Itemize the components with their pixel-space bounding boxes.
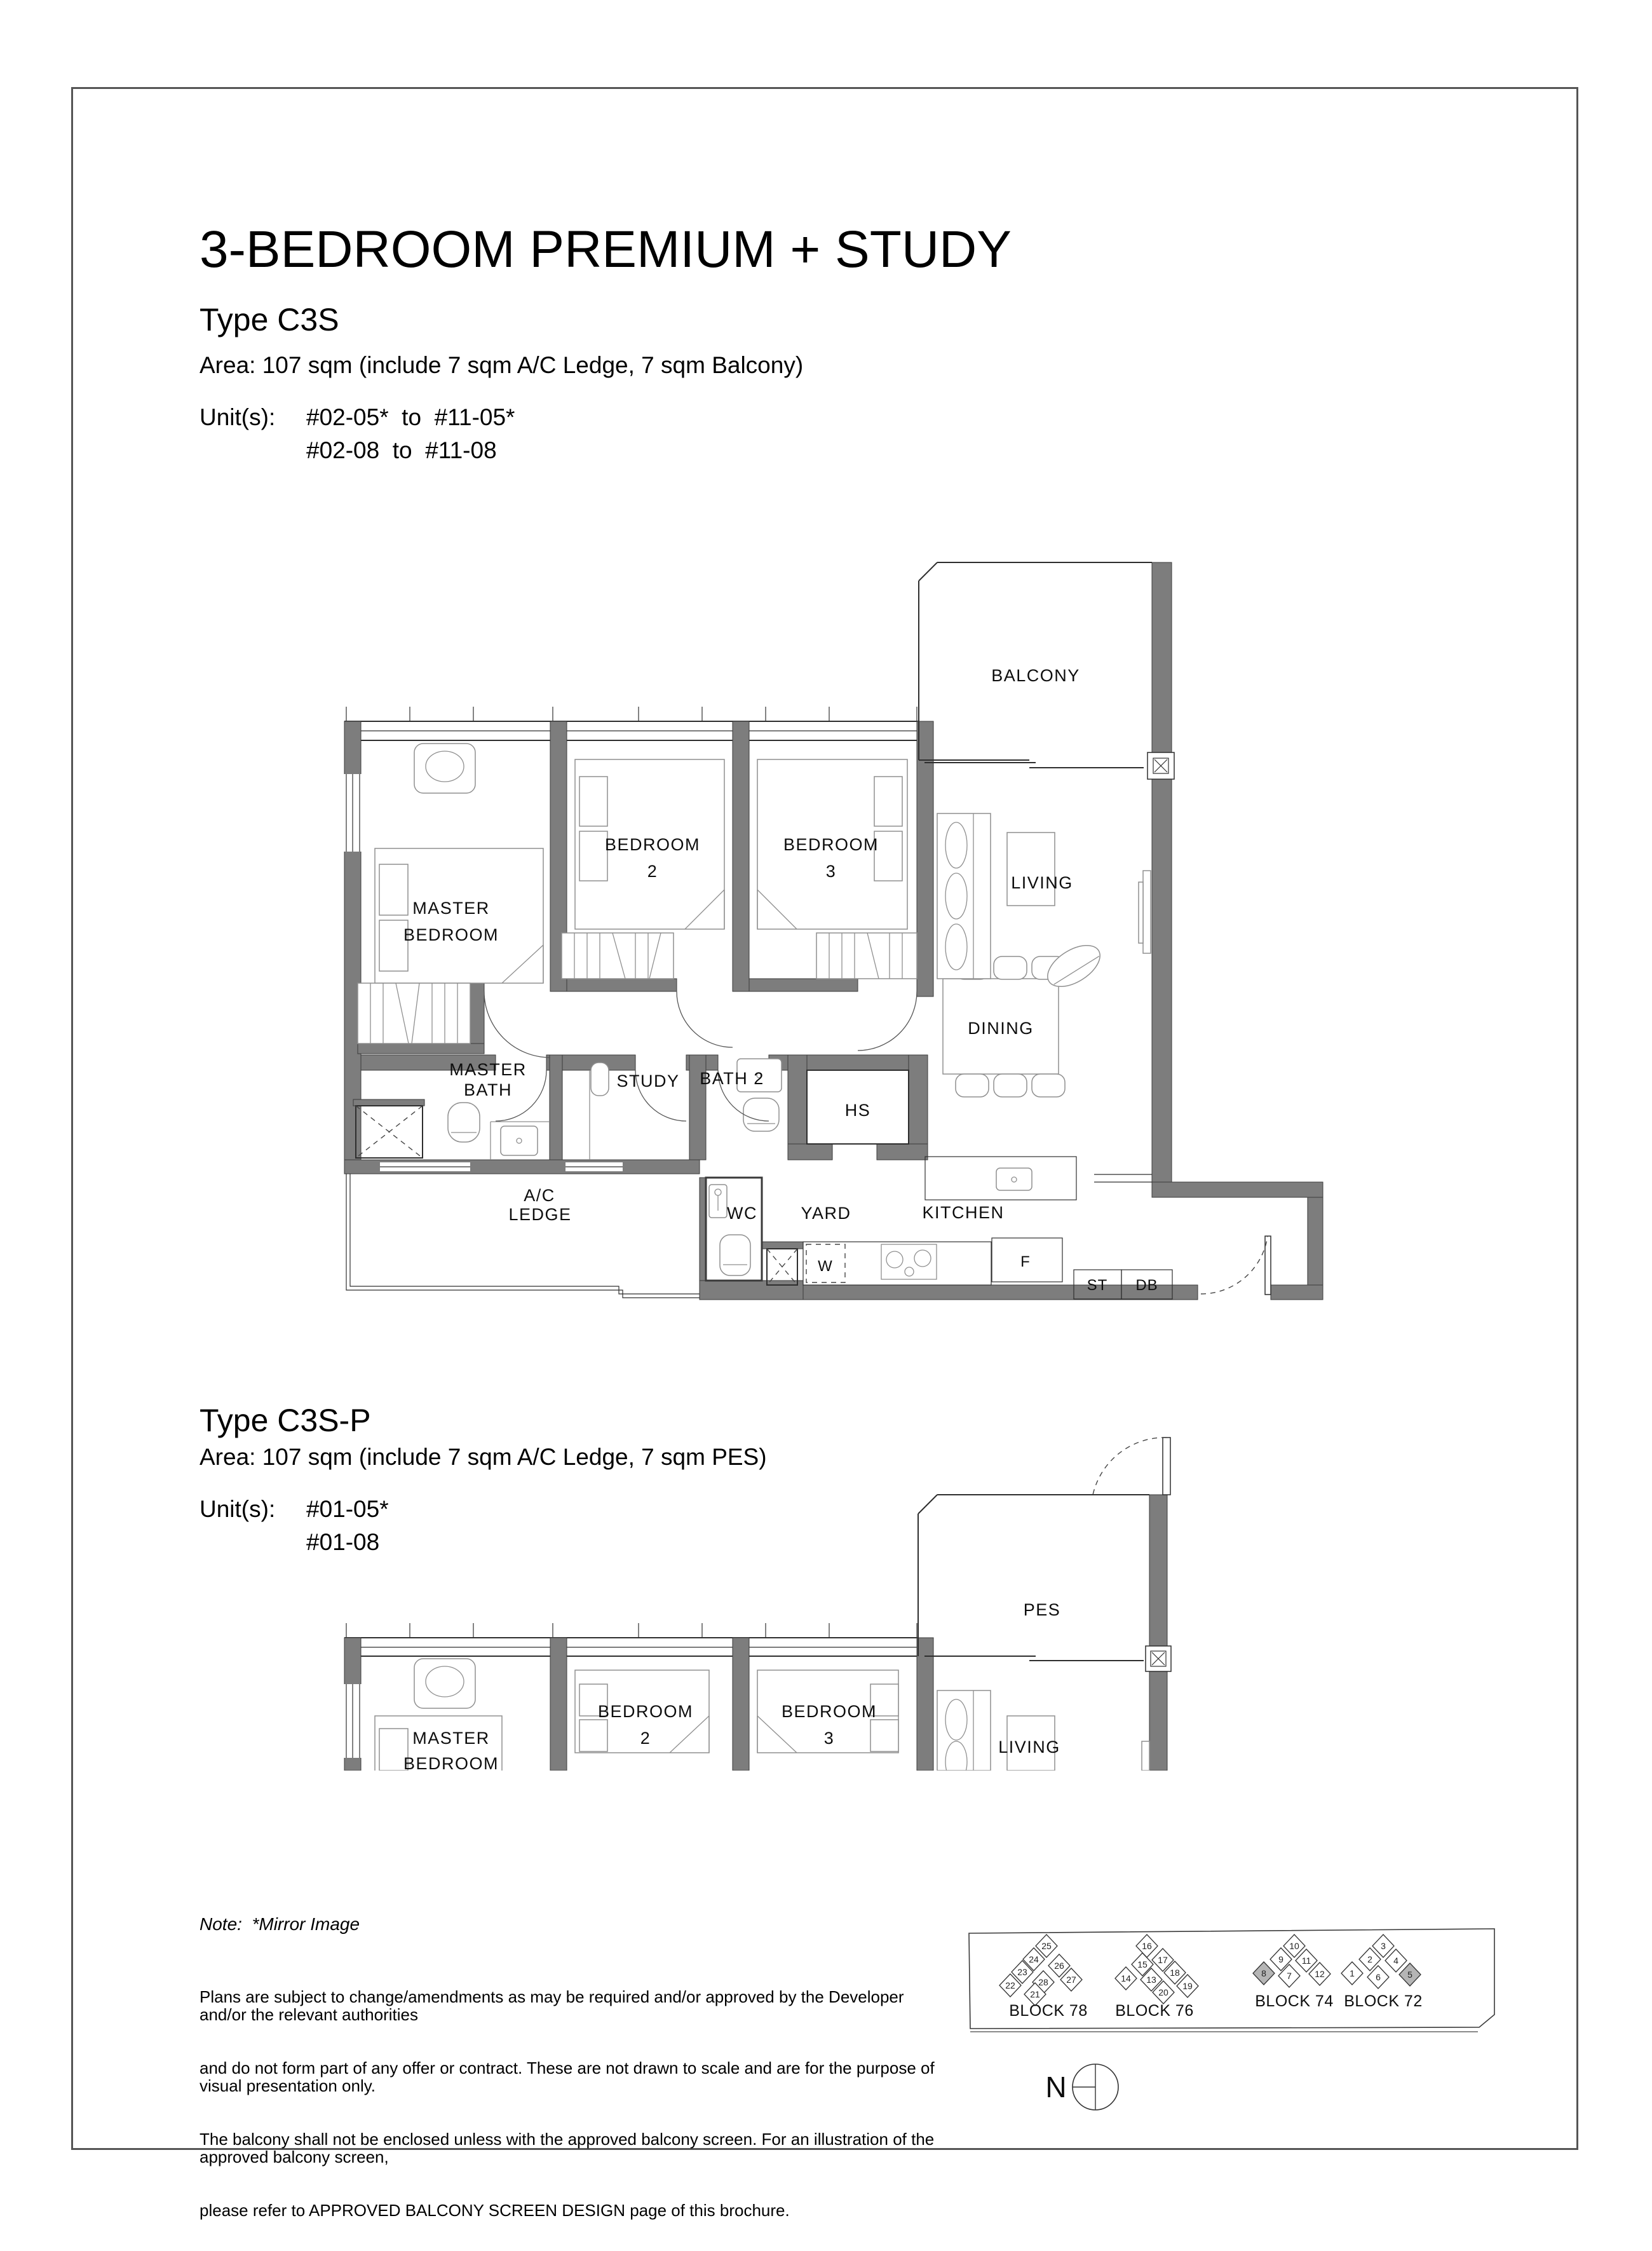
label-bed3-2: 3 [826, 862, 837, 881]
label-master2-1: MASTER [412, 1729, 490, 1748]
master-bath-fixtures [448, 1103, 550, 1160]
key-unit-number-21: 21 [1030, 1989, 1040, 1999]
label-bed2p-1: BEDROOM [598, 1702, 693, 1721]
label-wc: WC [727, 1204, 757, 1223]
floorplans-graphic: BALCONY LIVING DINING MASTER BEDROOM BED… [0, 0, 1652, 2251]
label-bath2: BATH 2 [700, 1069, 764, 1088]
key-unit-number-15: 15 [1137, 1959, 1148, 1969]
window-band-2 [344, 1623, 919, 1656]
north-compass: N [1045, 2064, 1118, 2110]
label-balcony: BALCONY [991, 666, 1080, 685]
block-label-1: BLOCK 76 [1115, 2002, 1194, 2020]
label-study: STUDY [616, 1071, 679, 1091]
key-unit-number-11: 11 [1302, 1955, 1311, 1966]
label-bed2p-2: 2 [640, 1729, 651, 1748]
key-unit-number-12: 12 [1315, 1969, 1325, 1979]
label-living: LIVING [1011, 873, 1073, 892]
key-unit-number-1: 1 [1350, 1968, 1355, 1978]
label-yard: YARD [801, 1204, 851, 1223]
key-unit-number-26: 26 [1054, 1961, 1064, 1971]
key-unit-number-6: 6 [1376, 1972, 1381, 1982]
label-bed3-1: BEDROOM [783, 835, 879, 854]
north-label: N [1045, 2071, 1066, 2104]
master-bed [375, 744, 543, 983]
label-bed3p-2: 3 [824, 1729, 835, 1748]
block-label-0: BLOCK 78 [1009, 2002, 1088, 2020]
key-unit-number-24: 24 [1029, 1954, 1039, 1964]
entrance-door [1201, 1236, 1271, 1295]
key-unit-number-4: 4 [1393, 1955, 1398, 1966]
label-master-2: BEDROOM [403, 925, 499, 944]
label-db: DB [1135, 1277, 1158, 1294]
block-label-2: BLOCK 74 [1255, 1992, 1334, 2010]
key-unit-number-25: 25 [1041, 1941, 1052, 1951]
key-unit-number-13: 13 [1146, 1975, 1156, 1985]
key-unit-number-23: 23 [1017, 1967, 1027, 1977]
key-unit-number-17: 17 [1158, 1955, 1168, 1965]
key-unit-number-14: 14 [1121, 1973, 1131, 1983]
key-unit-number-7: 7 [1287, 1971, 1292, 1981]
pes-structure [918, 1438, 1171, 1671]
key-unit-number-18: 18 [1170, 1968, 1180, 1978]
ac-ledge-outline [346, 1174, 700, 1298]
floorplan-c3s: BALCONY LIVING DINING MASTER BEDROOM BED… [342, 562, 1323, 1300]
kitchen-counter-top [925, 1157, 1152, 1200]
key-unit-number-27: 27 [1066, 1975, 1076, 1985]
label-master-1: MASTER [412, 899, 490, 918]
key-unit-number-16: 16 [1142, 1941, 1152, 1951]
floorplan-c3s-p: PES LIVING MASTER BEDROOM BEDROOM 2 BEDR… [342, 1438, 1171, 1786]
wc-room [706, 1178, 762, 1281]
label-pes: PES [1024, 1600, 1061, 1619]
label-mbath-2: BATH [464, 1080, 512, 1099]
key-unit-number-19: 19 [1182, 1981, 1193, 1991]
label-ac-1: A/C [524, 1186, 555, 1205]
block-label-3: BLOCK 72 [1344, 1992, 1423, 2010]
key-unit-number-8: 8 [1261, 1968, 1266, 1978]
key-unit-number-20: 20 [1158, 1987, 1168, 1997]
label-bed2-1: BEDROOM [605, 835, 700, 854]
label-bed3p-1: BEDROOM [782, 1702, 877, 1721]
label-mbath-1: MASTER [449, 1060, 527, 1079]
label-washer: W [818, 1258, 833, 1275]
label-master2-2: BEDROOM [403, 1754, 499, 1773]
label-fridge: F [1020, 1253, 1031, 1270]
label-ac-2: LEDGE [508, 1205, 571, 1224]
key-unit-number-3: 3 [1381, 1941, 1386, 1951]
window-band [344, 707, 919, 740]
label-st: ST [1087, 1277, 1108, 1294]
key-unit-number-22: 22 [1005, 1980, 1015, 1990]
key-plan: 2524232226272821BLOCK 781617151418191320… [969, 1929, 1494, 2032]
study-desk [590, 1063, 609, 1160]
label-bed2-2: 2 [647, 862, 658, 881]
label-hs: HS [845, 1101, 871, 1120]
label-living-2: LIVING [998, 1738, 1060, 1757]
key-unit-number-9: 9 [1278, 1954, 1283, 1964]
brochure-page: 3-BEDROOM PREMIUM + STUDY Type C3S Area:… [0, 0, 1652, 2251]
key-unit-number-2: 2 [1367, 1954, 1372, 1964]
label-dining: DINING [968, 1019, 1034, 1038]
key-unit-number-28: 28 [1038, 1977, 1048, 1987]
label-kitchen: KITCHEN [922, 1203, 1004, 1222]
key-unit-number-5: 5 [1407, 1969, 1412, 1980]
key-unit-number-10: 10 [1289, 1941, 1299, 1951]
